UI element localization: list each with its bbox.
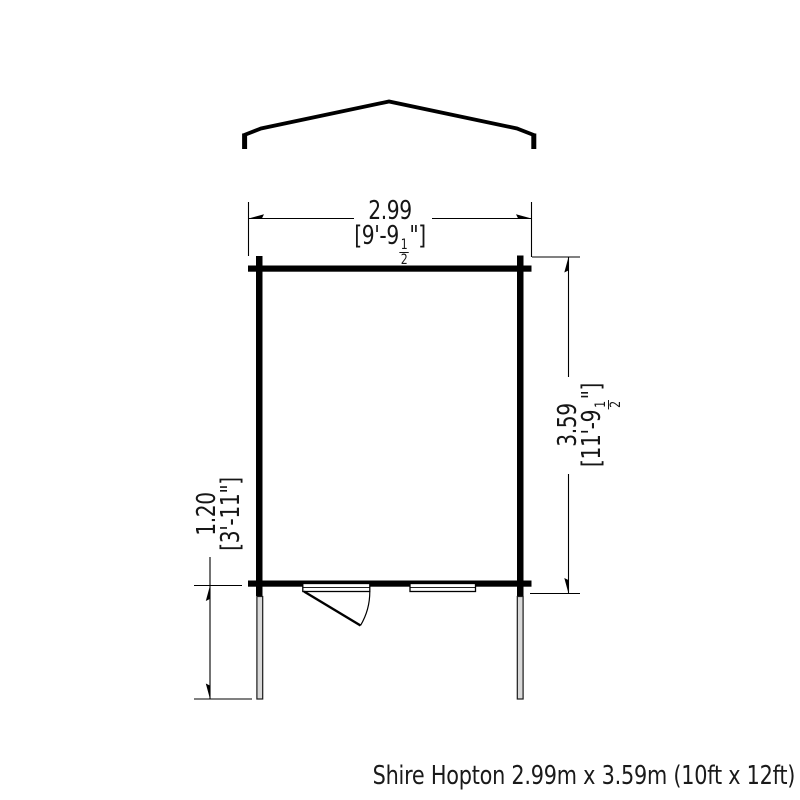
building-walls	[248, 256, 532, 597]
width-imperial-suffix: "]	[409, 221, 425, 251]
depth-arrow-bottom	[564, 578, 568, 594]
depth-imperial-suffix: "]	[577, 383, 607, 399]
floorplan-drawing	[0, 0, 800, 800]
post-right	[517, 597, 523, 700]
floorplan-page: 2.99 [9'-912"] 3.59 [11'-912"] 1.20 [3'-…	[0, 0, 800, 800]
width-fraction: 12	[400, 238, 409, 268]
porch-arrow-top	[206, 586, 210, 602]
support-posts	[257, 597, 523, 700]
product-title: Shire Hopton 2.99m x 3.59m (10ft x 12ft)	[372, 761, 795, 791]
width-imperial-prefix: [9'-9	[354, 221, 399, 251]
porch-arrow-bottom	[206, 684, 210, 700]
roof-slopes	[243, 102, 535, 136]
porch-imperial-value: [3'-11"]	[219, 448, 243, 581]
depth-dimension-label: 3.59 [11'-912"]	[556, 359, 604, 492]
porch-dimension-label: 1.20 [3'-11"]	[195, 448, 243, 581]
door-leaf	[304, 592, 361, 626]
width-imperial-value: [9'-912"]	[328, 224, 453, 267]
porch-imperial-text: [3'-11"]	[216, 477, 246, 551]
door	[303, 584, 370, 626]
depth-imperial-value: [11'-912"]	[580, 359, 623, 492]
depth-arrow-top	[564, 257, 568, 273]
depth-fraction: 12	[594, 400, 624, 409]
wall-bottom	[248, 581, 532, 587]
roof-outline	[243, 102, 535, 150]
wall-left	[256, 256, 263, 596]
width-arrow-left	[249, 214, 265, 218]
post-left	[257, 597, 263, 700]
window	[410, 584, 476, 592]
door-swing-arc	[361, 592, 370, 626]
depth-fraction-numerator: 1	[594, 400, 609, 409]
width-fraction-numerator: 1	[400, 238, 409, 253]
width-arrow-right	[516, 214, 532, 218]
wall-right	[517, 256, 524, 597]
width-dimension-label: 2.99 [9'-912"]	[328, 199, 453, 267]
depth-fraction-denominator: 2	[609, 400, 623, 409]
depth-imperial-prefix: [11'-9	[577, 410, 607, 467]
width-fraction-denominator: 2	[400, 253, 409, 267]
